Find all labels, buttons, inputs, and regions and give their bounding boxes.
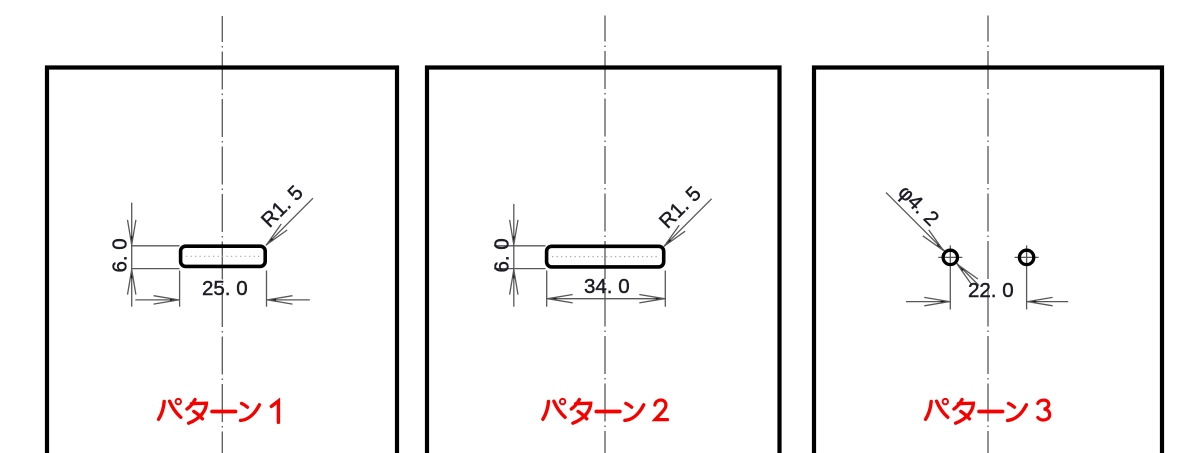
svg-text:22. 0: 22. 0 [968,279,1014,302]
svg-text:34. 0: 34. 0 [584,275,630,298]
svg-text:25. 0: 25. 0 [202,277,248,300]
svg-text:6. 0: 6. 0 [491,238,514,272]
svg-text:6. 0: 6. 0 [109,238,132,272]
